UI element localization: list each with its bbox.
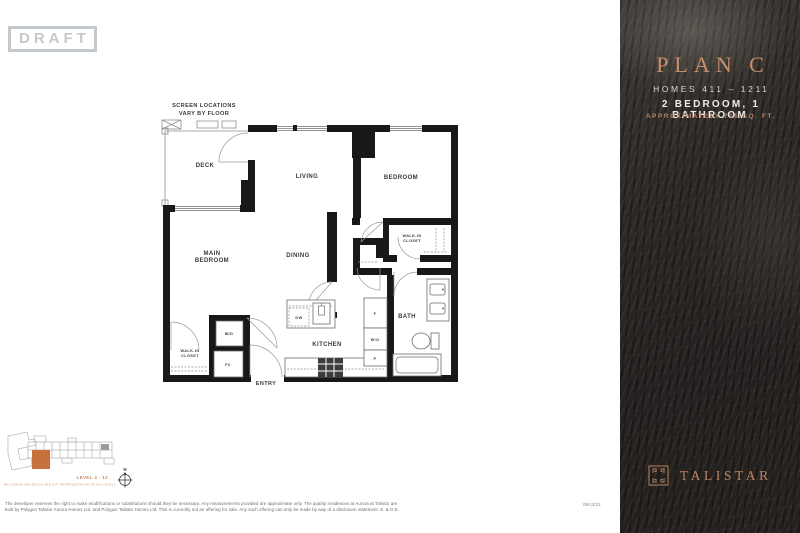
label-walkin-main-2: CLOSET bbox=[181, 354, 199, 358]
draft-badge: DRAFT bbox=[8, 26, 97, 52]
revision-date: 09/13/23 bbox=[583, 502, 601, 507]
compass-n-label: N bbox=[123, 467, 126, 472]
keyplan-unit-highlight bbox=[32, 450, 50, 469]
plan-title: PLAN C bbox=[620, 52, 800, 78]
label-entry: ENTRY bbox=[256, 381, 276, 387]
toilet-bowl bbox=[412, 333, 430, 349]
homes-range: HOMES 411 – 1211 bbox=[620, 84, 800, 94]
keyplan-building bbox=[8, 432, 114, 470]
keyplan: LEVEL 4 - 12 BALCONIES AND DECKS ARE NOT… bbox=[4, 424, 136, 494]
label-walkin-main-1: WALK-IN bbox=[180, 349, 199, 353]
disclaimer: The developer reserves the right to make… bbox=[5, 501, 425, 513]
label-walkin-bedroom-2: CLOSET bbox=[403, 239, 421, 243]
floorplan-drawing: SCREEN LOCATIONS VARY BY FLOOR bbox=[140, 95, 475, 415]
keyplan-note: BALCONIES AND DECKS ARE NOT REPRESENTATI… bbox=[4, 483, 116, 487]
label-fc: FC bbox=[225, 363, 231, 367]
label-bath: BATH bbox=[398, 314, 416, 320]
bath-fixtures bbox=[393, 279, 449, 376]
label-pantry: P bbox=[374, 357, 377, 361]
brand-name: TALISTAR bbox=[676, 468, 771, 484]
label-bedroom: BEDROOM bbox=[384, 175, 418, 181]
label-wall-oven: W/O bbox=[371, 338, 380, 342]
area-label: APPROXIMATELY 715 SQ. FT. bbox=[620, 113, 800, 120]
screen-note-line2: VARY BY FLOOR bbox=[179, 111, 229, 117]
label-dining: DINING bbox=[286, 253, 309, 259]
label-fridge: F bbox=[374, 312, 377, 316]
toilet-tank bbox=[431, 333, 439, 349]
talistar-logo-icon bbox=[648, 465, 669, 486]
label-deck: DECK bbox=[196, 163, 215, 169]
info-panel: PLAN C HOMES 411 – 1211 2 BEDROOM, 1 BAT… bbox=[620, 0, 800, 533]
keyplan-core bbox=[101, 444, 109, 450]
label-main-bedroom-2: BEDROOM bbox=[195, 258, 229, 264]
screen-box-3 bbox=[222, 121, 236, 128]
label-dw: DW bbox=[295, 316, 302, 320]
screen-box-2 bbox=[197, 121, 218, 128]
disclaimer-line2: built by Polygon Talistar Aurora Homes L… bbox=[5, 507, 425, 513]
flyer-page: DRAFT SCREEN LOCATIONS VARY BY FLOOR bbox=[0, 0, 800, 533]
label-kitchen: KITCHEN bbox=[312, 342, 341, 348]
screen-note-line1: SCREEN LOCATIONS bbox=[172, 103, 236, 109]
brand-lockup: TALISTAR bbox=[620, 465, 800, 486]
range bbox=[318, 358, 343, 377]
label-wd: W/D bbox=[225, 332, 234, 336]
label-main-bedroom-1: MAIN bbox=[204, 251, 221, 257]
label-walkin-bedroom-1: WALK-IN bbox=[402, 234, 421, 238]
compass-icon: N bbox=[118, 467, 133, 488]
label-living: LIVING bbox=[296, 174, 318, 180]
keyplan-level-label: LEVEL 4 - 12 bbox=[77, 475, 108, 480]
